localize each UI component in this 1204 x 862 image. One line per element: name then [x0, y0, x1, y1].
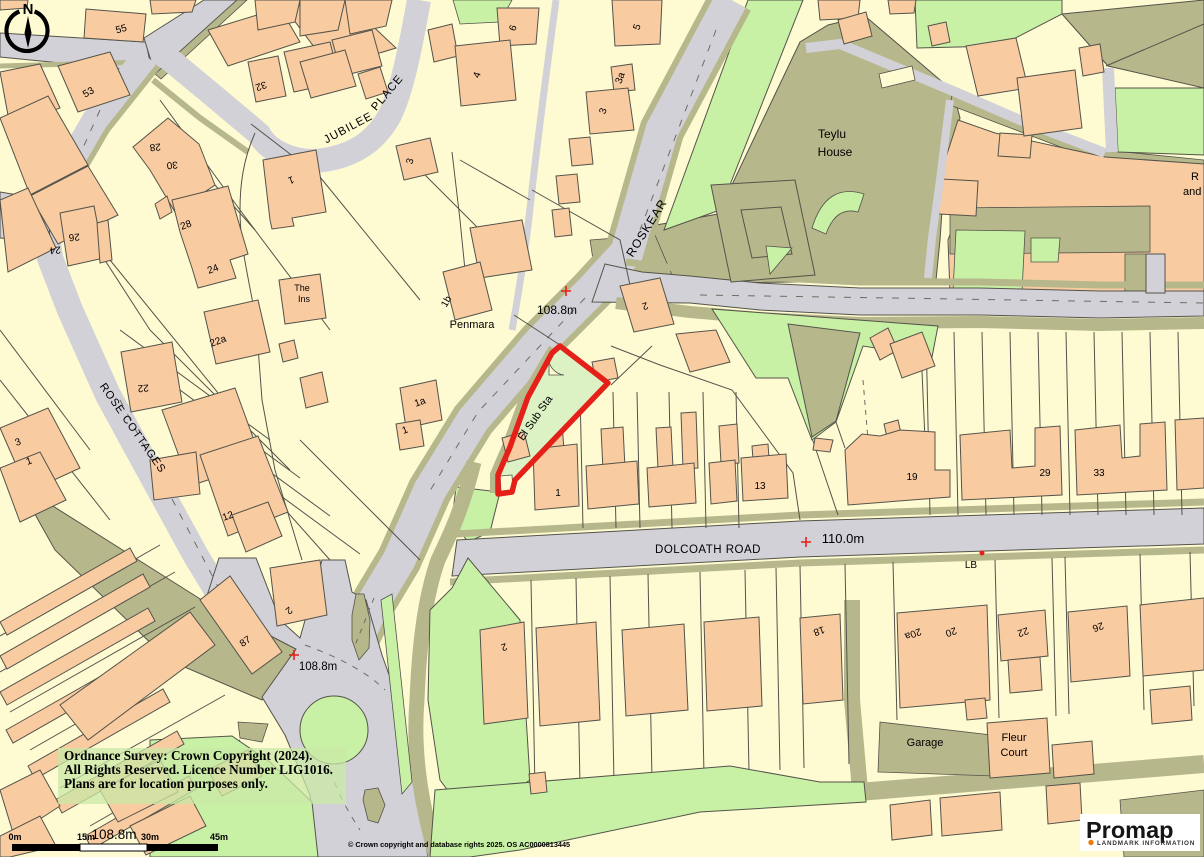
- svg-text:Ordnance Survey: Crown Copyrig: Ordnance Survey: Crown Copyright (2024).: [64, 748, 312, 763]
- svg-text:All Rights Reserved. Licence N: All Rights Reserved. Licence Number LIG1…: [64, 762, 333, 777]
- svg-text:29: 29: [1039, 468, 1051, 479]
- svg-text:and: and: [1183, 186, 1201, 198]
- svg-text:22: 22: [137, 382, 149, 394]
- svg-text:R: R: [1191, 171, 1199, 183]
- svg-text:© Crown copyright and database: © Crown copyright and database rights 20…: [348, 840, 570, 849]
- svg-text:30: 30: [166, 159, 178, 171]
- svg-text:N: N: [23, 1, 34, 18]
- svg-text:108.8m: 108.8m: [299, 661, 337, 673]
- svg-text:Fleur: Fleur: [1001, 732, 1026, 744]
- svg-text:The: The: [294, 283, 310, 293]
- svg-text:13: 13: [754, 481, 766, 492]
- svg-text:0m: 0m: [8, 832, 21, 842]
- svg-text:Court: Court: [1001, 747, 1028, 759]
- svg-text:DOLCOATH ROAD: DOLCOATH ROAD: [655, 544, 761, 556]
- svg-text:Plans are for location purpose: Plans are for location purposes only.: [64, 776, 268, 791]
- svg-text:Penmara: Penmara: [450, 319, 496, 331]
- svg-text:House: House: [818, 145, 853, 159]
- svg-text:108.8m: 108.8m: [91, 827, 136, 842]
- svg-text:110.0m: 110.0m: [822, 531, 864, 546]
- svg-text:Ins: Ins: [298, 294, 311, 304]
- svg-text:45m: 45m: [210, 832, 228, 842]
- svg-text:30m: 30m: [141, 832, 159, 842]
- svg-text:LB: LB: [965, 560, 978, 571]
- svg-text:19: 19: [906, 472, 918, 483]
- svg-text:28: 28: [149, 141, 161, 153]
- svg-text:24: 24: [49, 244, 61, 256]
- svg-text:Teylu: Teylu: [818, 127, 846, 141]
- svg-text:Garage: Garage: [907, 737, 944, 749]
- svg-text:108.8m: 108.8m: [537, 303, 577, 317]
- svg-text:1: 1: [555, 488, 561, 499]
- svg-text:26: 26: [68, 231, 80, 243]
- svg-text:LANDMARK INFORMATION: LANDMARK INFORMATION: [1097, 840, 1195, 847]
- svg-text:33: 33: [1093, 468, 1105, 479]
